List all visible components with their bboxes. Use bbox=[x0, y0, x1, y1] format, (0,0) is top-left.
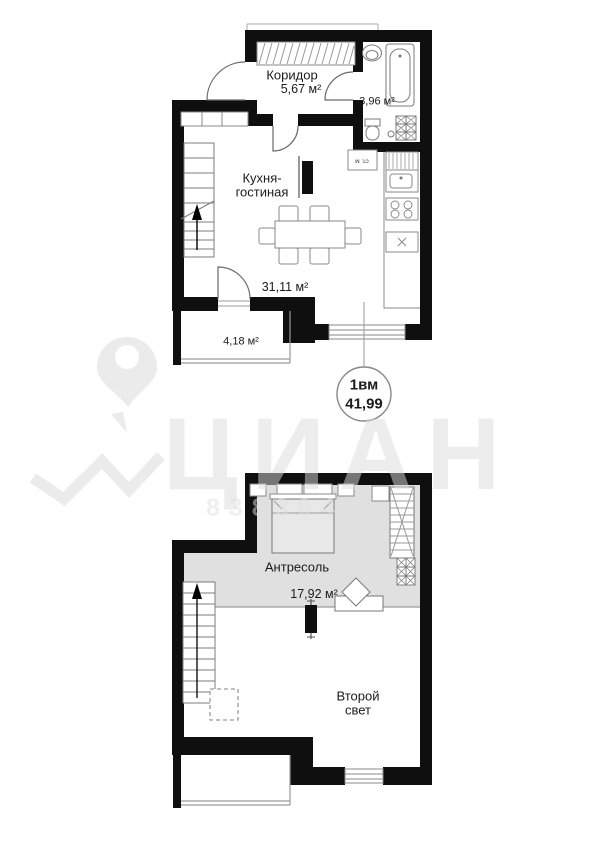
dining-table bbox=[275, 221, 345, 248]
pillow bbox=[304, 484, 332, 494]
staircase-lower-plan bbox=[183, 582, 215, 703]
floorplan-canvas: Коридор 5,67 м² 3,96 м² Кухня- гостиная … bbox=[0, 0, 600, 848]
toilet-bowl bbox=[366, 126, 379, 140]
corridor-wardrobe bbox=[257, 42, 355, 65]
label-kitchen-name-line2: гостиная bbox=[236, 186, 289, 199]
nightstand bbox=[338, 484, 354, 496]
chair bbox=[259, 228, 275, 244]
bathroom-door bbox=[325, 72, 353, 100]
watermark-zigzag-icon bbox=[33, 456, 161, 499]
entrance-door bbox=[207, 62, 245, 100]
label-mezzanine-name: Антресоль bbox=[265, 561, 329, 574]
upper-outline-line bbox=[247, 24, 378, 30]
callout-total-area: 41,99 bbox=[345, 397, 383, 412]
bathroom-fixtures bbox=[363, 44, 417, 140]
stove bbox=[386, 198, 418, 220]
bathroom-sink bbox=[363, 45, 382, 61]
callout-layout-type: 1вм bbox=[350, 378, 378, 393]
balcony-lower bbox=[181, 755, 290, 805]
chair bbox=[345, 228, 361, 244]
dashed-opening bbox=[210, 689, 238, 720]
label-corridor-name: Коридор bbox=[266, 69, 317, 82]
kitchen-sink bbox=[386, 170, 418, 192]
label-balcony-area: 4,18 м² bbox=[223, 337, 259, 348]
label-washing-machine: ст. м bbox=[355, 157, 369, 164]
balcony-door-sill bbox=[218, 301, 250, 306]
toilet-tank bbox=[365, 119, 380, 126]
living-room-window bbox=[329, 325, 405, 339]
label-kitchen-name-line1: Кухня- bbox=[242, 172, 281, 185]
label-mezzanine-area: 17,92 м² bbox=[290, 588, 338, 601]
label-kitchen-area: 31,11 м² bbox=[262, 281, 309, 294]
label-second-light-line1: Второй bbox=[337, 690, 380, 703]
corridor-kitchen-door bbox=[273, 126, 298, 151]
bed bbox=[272, 499, 334, 553]
dining-set bbox=[259, 206, 361, 264]
watermark-logo bbox=[33, 337, 161, 499]
chair bbox=[279, 248, 298, 264]
floorplan-drawing bbox=[0, 0, 600, 848]
watermark-pin-icon bbox=[97, 337, 157, 407]
headboard bbox=[270, 494, 336, 499]
lower-windows bbox=[345, 769, 383, 783]
chair bbox=[310, 206, 329, 222]
shelf-grid bbox=[397, 558, 415, 585]
chair bbox=[310, 248, 329, 264]
lower-floor-plan bbox=[172, 473, 432, 808]
wardrobe bbox=[390, 487, 414, 558]
label-bathroom-area: 3,96 м² bbox=[359, 97, 395, 108]
tv-mezzanine bbox=[305, 599, 317, 639]
watermark-pin-tail bbox=[111, 412, 127, 433]
staircase-upper-plan bbox=[181, 143, 214, 257]
balcony-door bbox=[218, 267, 250, 299]
pouf bbox=[372, 486, 389, 501]
chair bbox=[279, 206, 298, 222]
tv-living-room bbox=[299, 156, 313, 198]
label-second-light-line2: свет bbox=[345, 704, 371, 717]
label-corridor-area: 5,67 м² bbox=[281, 83, 322, 96]
kitchen-top-closet bbox=[181, 112, 248, 126]
nightstand bbox=[250, 484, 266, 496]
second-light-window bbox=[345, 769, 383, 783]
pillow bbox=[277, 484, 302, 494]
